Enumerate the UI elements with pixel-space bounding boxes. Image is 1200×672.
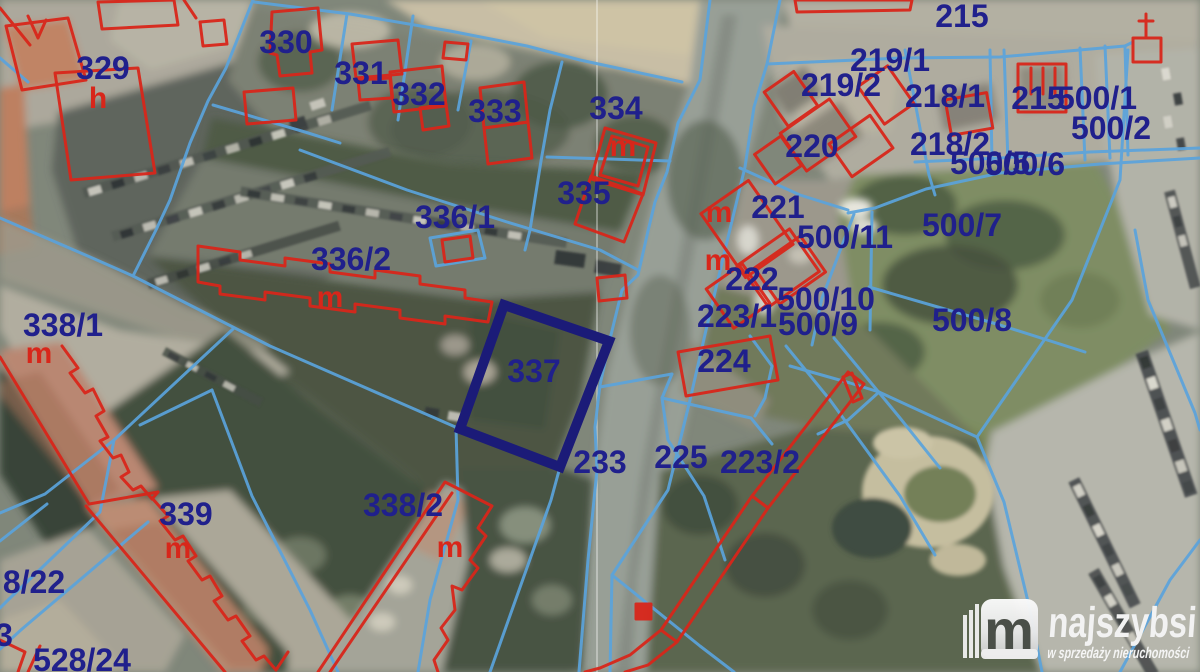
svg-text:m: m	[317, 281, 344, 314]
svg-text:222: 222	[725, 261, 778, 297]
svg-text:215: 215	[935, 0, 988, 34]
svg-text:500/10: 500/10	[777, 281, 875, 317]
svg-text:223/2: 223/2	[720, 444, 800, 480]
svg-text:m: m	[26, 337, 53, 370]
svg-text:w sprzedaży nieruchomości: w sprzedaży nieruchomości	[1047, 645, 1191, 662]
svg-text:220: 220	[785, 128, 838, 164]
svg-text:337: 337	[507, 353, 560, 389]
svg-text:336/2: 336/2	[311, 241, 391, 277]
svg-text:500/11: 500/11	[797, 219, 893, 255]
svg-text:m: m	[706, 196, 733, 229]
svg-text:333: 333	[468, 93, 521, 129]
svg-text:233: 233	[573, 444, 626, 480]
svg-text:219/2: 219/2	[801, 67, 881, 103]
svg-text:m: m	[437, 531, 464, 564]
svg-text:330: 330	[259, 24, 312, 60]
svg-text:500/7: 500/7	[922, 207, 1002, 243]
svg-text:500/6: 500/6	[985, 146, 1065, 182]
svg-text:m: m	[705, 244, 732, 277]
svg-text:339: 339	[159, 496, 212, 532]
svg-text:528/24: 528/24	[33, 642, 131, 672]
svg-text:500/8: 500/8	[932, 302, 1012, 338]
svg-text:m: m	[165, 532, 192, 565]
svg-text:najszybsi: najszybsi	[1047, 599, 1198, 647]
svg-text:221: 221	[751, 189, 804, 225]
svg-text:h: h	[89, 82, 107, 115]
svg-text:8/22: 8/22	[3, 564, 65, 600]
svg-text:225: 225	[654, 439, 707, 475]
svg-text:500/2: 500/2	[1071, 110, 1151, 146]
svg-text:338/2: 338/2	[363, 487, 443, 523]
svg-text:218/1: 218/1	[905, 78, 985, 114]
svg-text:335: 335	[557, 175, 610, 211]
svg-text:332: 332	[392, 76, 445, 112]
svg-text:m: m	[610, 130, 637, 163]
svg-text:3: 3	[0, 617, 13, 653]
svg-text:223/1: 223/1	[697, 298, 777, 334]
svg-text:224: 224	[697, 343, 751, 379]
svg-text:329: 329	[76, 50, 129, 86]
svg-text:334: 334	[589, 90, 643, 126]
svg-text:331: 331	[334, 55, 387, 91]
svg-text:336/1: 336/1	[415, 199, 495, 235]
